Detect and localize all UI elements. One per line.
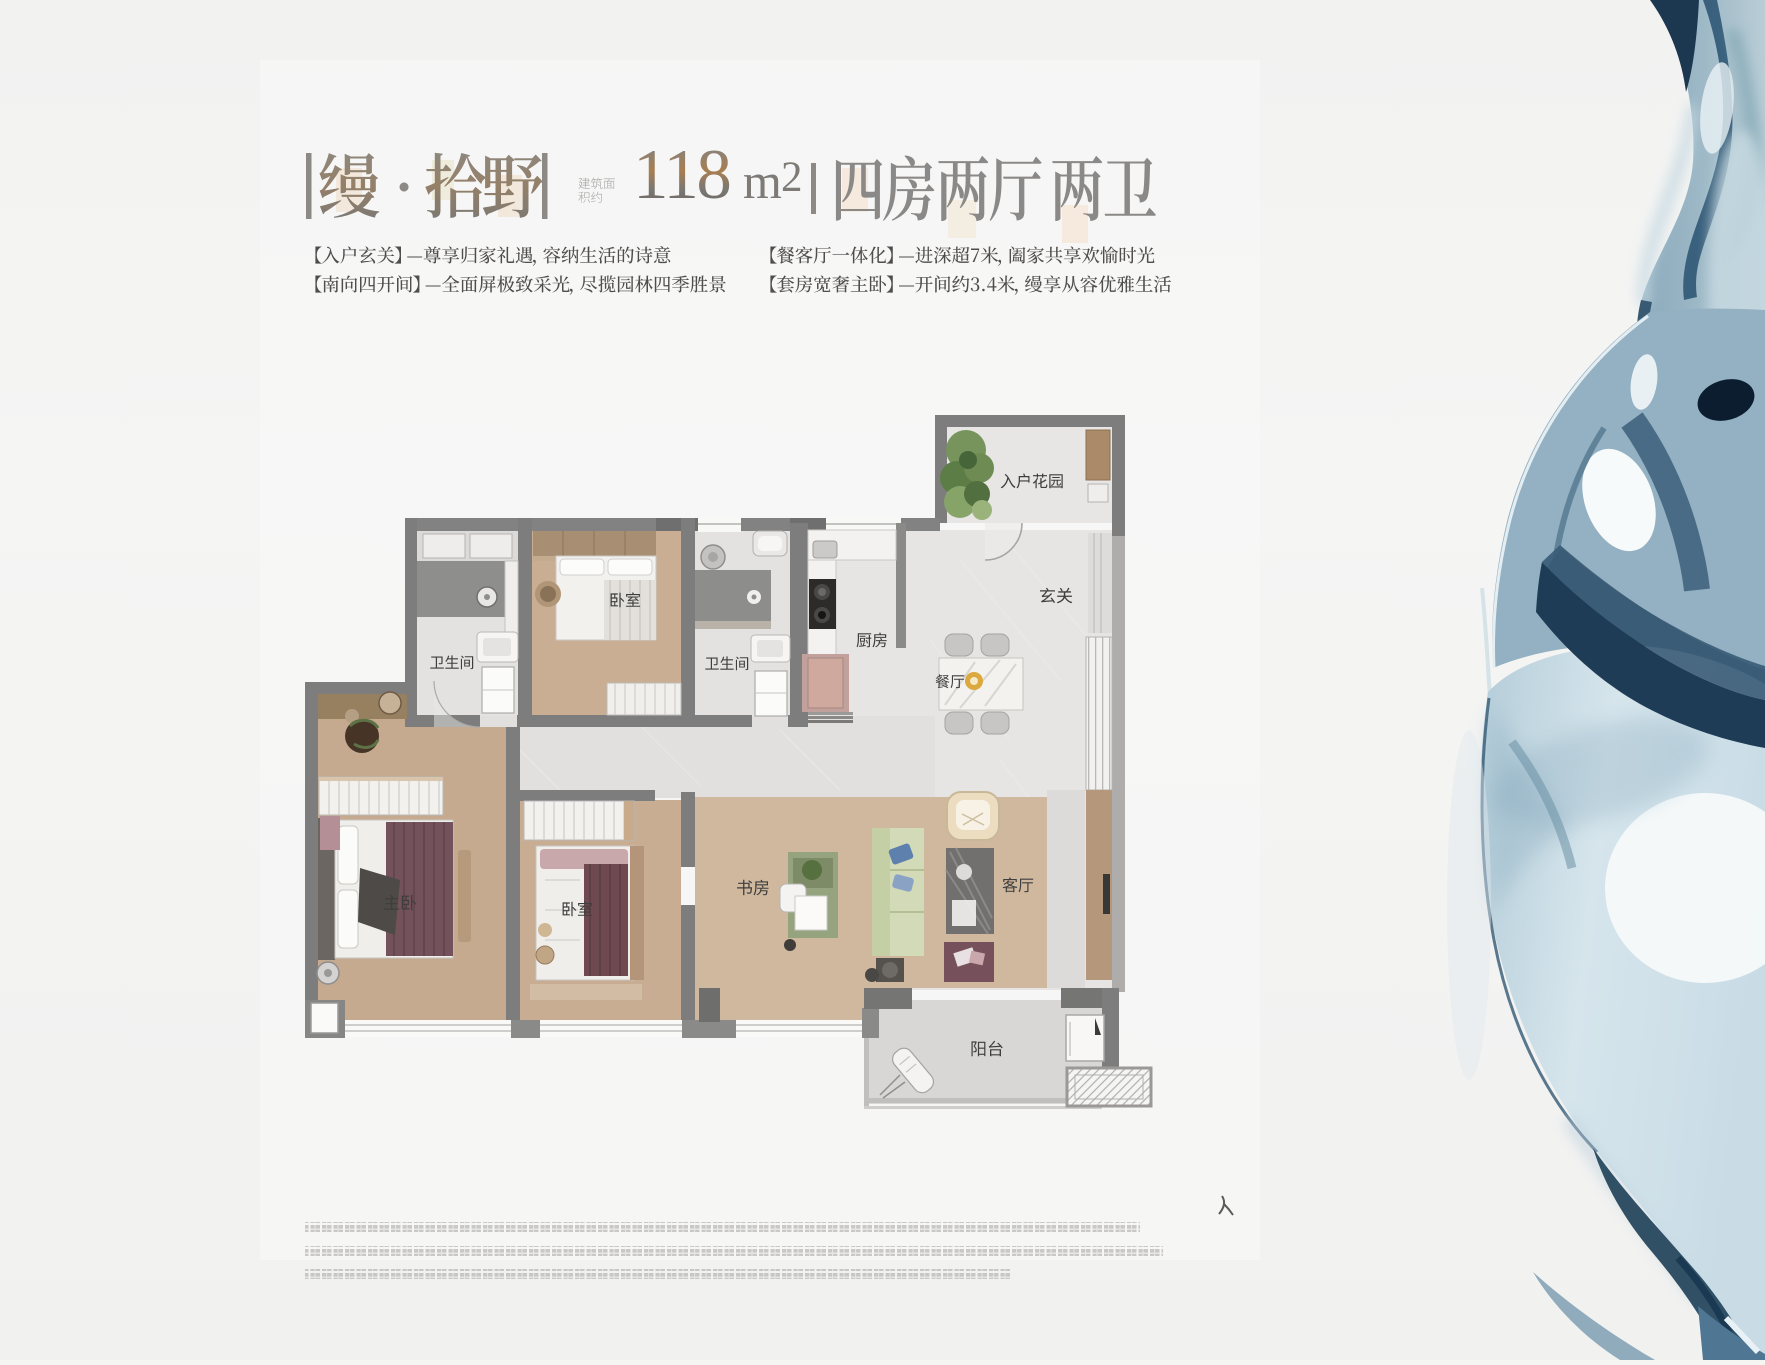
- svg-text:2: 2: [781, 154, 803, 201]
- svg-text:118: 118: [633, 136, 729, 214]
- svg-text:m: m: [743, 153, 782, 209]
